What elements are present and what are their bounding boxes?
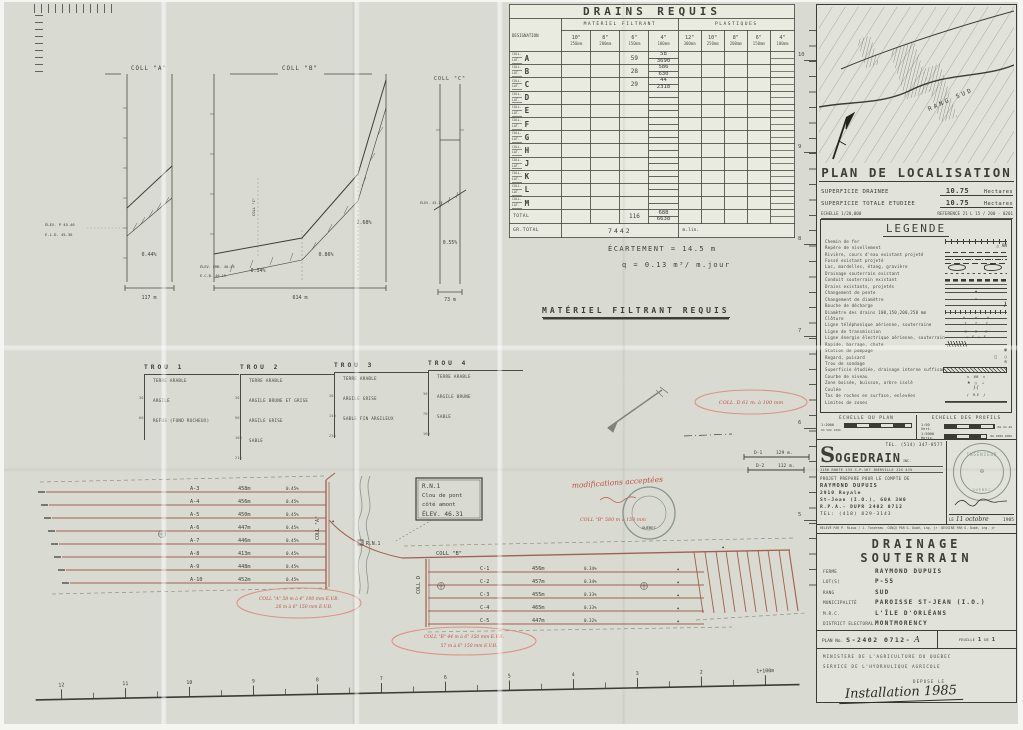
- scale-bar: [944, 434, 987, 439]
- materiel-filtrant-heading: MATÉRIEL FILTRANT REQUIS: [542, 306, 730, 318]
- manhole-symbol-icon: [945, 354, 1007, 360]
- group-header-plastiques: PLASTIQUES: [678, 19, 794, 31]
- value-cell-150mm: [620, 183, 649, 196]
- svg-text:COLL "B" 44 m à 6" 150 mm E: COLL "B" 44 m à 6" 150 mm E.V.B.: [424, 633, 505, 640]
- client-phone: TEL: (418) 829-3143: [820, 512, 943, 517]
- elevation-note: E.C.B. 40.19: [200, 274, 226, 278]
- svg-text:0.45%: 0.45%: [286, 564, 299, 569]
- group-header-filtrant: MATÉRIEL FILTRANT: [562, 19, 678, 31]
- svg-text:0.45%: 0.45%: [286, 486, 299, 491]
- svg-text:0.45%: 0.45%: [286, 551, 299, 556]
- client-address: 2910 Royale: [820, 491, 943, 496]
- svg-text:▲: ▲: [677, 619, 680, 623]
- wooded-zone-symbol-icon: [945, 380, 1007, 386]
- designation-header: DESIGNATION: [510, 19, 562, 52]
- value-cell-100mm: [649, 104, 678, 117]
- svg-text:26 m à 6" 150 mm E.V.B.: 26 m à 6" 150 mm E.V.B.: [275, 603, 333, 610]
- value-cell-150mm: [620, 157, 649, 170]
- svg-text:Clou de pont: Clou de pont: [422, 493, 462, 499]
- designation-letter: M: [525, 199, 530, 208]
- value-cell-150mm: [620, 91, 649, 104]
- svg-text:A-6: A-6: [190, 525, 199, 531]
- svg-text:A-10: A-10: [190, 577, 203, 583]
- drawing-title: DRAINAGE SOUTERRAIN: [817, 537, 1016, 565]
- collector-a: [326, 473, 402, 589]
- designation-letter: J: [525, 159, 530, 168]
- svg-text:A-3: A-3: [190, 486, 199, 492]
- table-body: COLL.LAT.A 59 583690 COLL.LAT.B 28 58663…: [510, 52, 795, 210]
- benchmark-symbol-icon: [945, 245, 1007, 251]
- elevation-markers: ▲▲▲ ▲▲▲ ▲: [332, 519, 725, 623]
- svg-text:413m: 413m: [238, 551, 251, 557]
- svg-text:C-4: C-4: [480, 605, 489, 611]
- value-cell-100mm: [649, 91, 678, 104]
- designation-letter: G: [525, 133, 530, 142]
- title-block-field: M.R.C.L'ÎLE D'ORLÉANS: [823, 610, 1010, 620]
- client-rpa: R.P.A.- DUPR 2402 0712: [820, 505, 943, 510]
- svg-text:modifications acceptées: modifications acceptées: [572, 475, 664, 490]
- credits-row: RELEVÉ PAR P. Rioux / J. Tondreau CONÇU …: [817, 525, 1016, 534]
- handwritten-red-notes: COLL. D 61 m. à 100 mm modifications acc…: [237, 390, 807, 655]
- profile-scale: ECHELLE DES PROFILS 1:50 Vert.0m 1m 2m 1…: [916, 415, 1016, 439]
- svg-text:455m: 455m: [532, 592, 545, 598]
- length-label: 117 m: [141, 295, 156, 301]
- ecartement-value: ÉCARTEMENT = 14.5 m: [608, 245, 731, 253]
- table-row: COLL.LAT.F: [510, 117, 795, 130]
- title-block-field: LOT(S)P-55: [823, 578, 1010, 588]
- svg-text:côté amont: côté amont: [422, 501, 456, 508]
- value-cell-150mm: [620, 104, 649, 117]
- svg-text:ÉLEV. 46.31: ÉLEV. 46.31: [422, 509, 463, 518]
- slope-labels-a: 0.45%0.45% 0.45%0.45% 0.45%0.45% 0.45%0.…: [286, 486, 299, 582]
- fence-symbol-icon: [945, 315, 1007, 321]
- localisation-map: RANG SUD: [819, 7, 1014, 163]
- svg-text:0.33%: 0.33%: [584, 592, 597, 597]
- svg-text:57 m à 6" 150 mm E.V.B.: 57 m à 6" 150 mm E.V.B.: [441, 642, 498, 649]
- profile-chart-coll-b: COLL "B" COLL "C" 0.34% 0.86% 2.68% 614 …: [200, 58, 400, 302]
- engineer-stamp: INGÉNIEUR ✠ QUÉBEC: [953, 443, 1011, 501]
- borehole-symbol-icon: [945, 361, 1007, 367]
- value-cell-150mm: [620, 117, 649, 130]
- lateral-labels-c: C-1456m C-2457m C-3455m C-4465m C-5447m: [480, 566, 545, 624]
- scanned-drainage-plan: COLL "A" 0.44% 117 m ÉLEV. P 45.46 E.L.D…: [0, 0, 1023, 730]
- approval-stamp: QUÉBEC: [623, 487, 675, 539]
- table-row: COLL.LAT.E: [510, 104, 795, 117]
- drains-requis-table: DRAINS REQUIS DESIGNATION MATÉRIEL FILTR…: [509, 4, 795, 238]
- svg-text:R.N.1: R.N.1: [366, 541, 381, 547]
- junction-label: COLL "C": [251, 198, 256, 216]
- svg-text:C-3: C-3: [480, 592, 489, 598]
- zone-markers: [159, 531, 648, 590]
- table-row: COLL.LAT.D: [510, 91, 795, 104]
- zone-limit-symbol-icon: [945, 399, 1007, 405]
- svg-text:COLL "A" 58 m à 4" 100 mm E: COLL "A" 58 m à 4" 100 mm E.V.B.: [259, 595, 340, 602]
- pumping-station-symbol-icon: [945, 348, 1007, 354]
- svg-text:C-1: C-1: [480, 566, 489, 572]
- svg-text:447m: 447m: [532, 618, 545, 624]
- slope-change-symbol-icon: [945, 290, 1007, 296]
- svg-text:▲: ▲: [677, 567, 680, 571]
- value-cell-100mm: [649, 144, 678, 157]
- debit-value: q = 0.13 m³/ m.jour: [608, 261, 731, 269]
- transmission-line-symbol-icon: [945, 328, 1007, 334]
- project-for-label: PROJET PREPARE POUR LE COMPTE DE: [820, 476, 943, 481]
- collector-b-label: COLL "B": [436, 551, 462, 557]
- svg-text:0.45%: 0.45%: [286, 538, 299, 543]
- value-cell-100mm: [649, 170, 678, 183]
- svg-text:0.45%: 0.45%: [286, 499, 299, 504]
- client-name: RAYMOND DUPUIS: [820, 483, 943, 489]
- d-profile-labels: D-1129 m. D-2112 m.: [754, 450, 795, 469]
- table-row: COLL.LAT.M: [510, 197, 795, 210]
- value-cell-100mm: [649, 117, 678, 130]
- value-cell-150mm: 28: [620, 65, 649, 78]
- slope-label: 0.44%: [141, 252, 156, 258]
- slope-label: 0.55%: [443, 240, 458, 246]
- spacing-note: ÉCARTEMENT = 14.5 m q = 0.13 m³/ m.jour: [608, 245, 731, 277]
- profile-title: COLL "A": [131, 66, 167, 72]
- lateral-drains-fan: [694, 550, 798, 613]
- designation-letter: B: [525, 67, 530, 76]
- table-row: COLL.LAT.J: [510, 157, 795, 170]
- field-boundaries: [40, 476, 806, 632]
- trou-title: TROU 2: [240, 364, 336, 371]
- svg-text:129 m.: 129 m.: [776, 450, 793, 456]
- svg-text:A-4: A-4: [190, 499, 199, 505]
- svg-text:▲: ▲: [677, 593, 680, 597]
- stream-lines: [358, 476, 370, 594]
- svg-text:A-7: A-7: [190, 538, 199, 544]
- svg-text:457m: 457m: [532, 579, 545, 585]
- ministry-block: MINISTERE DE L'AGRICULTURE DU QUEBEC SER…: [817, 649, 1016, 716]
- field-plan-drawing: ▲▲▲ ▲▲▲ ▲ A-3458m A-4456m A-5450m A-6447…: [32, 380, 817, 670]
- value-cell-100mm: 583690: [649, 52, 678, 65]
- value-cell-150mm: [620, 197, 649, 210]
- svg-text:456m: 456m: [238, 499, 251, 505]
- slope-label: 2.68%: [356, 220, 371, 226]
- value-cell-150mm: 29: [620, 78, 649, 91]
- svg-text:5: 5: [508, 673, 511, 679]
- gully-symbol-icon: [945, 386, 1007, 392]
- table-row: COLL.LAT.L: [510, 183, 795, 196]
- lateral-labels-a: A-3458m A-4456m A-5450m A-6447m A-7446m …: [190, 486, 251, 583]
- rapids-symbol-icon: [945, 341, 1007, 347]
- svg-text:6: 6: [444, 675, 447, 681]
- svg-text:1+100m: 1+100m: [756, 668, 774, 674]
- benchmark-box: R.N.1 Clou de pont côté amont ÉLEV. 46.3…: [358, 478, 482, 547]
- company-address: 1156 ROUTE 133 C.P.167 IBERVILLE J2X 4J5: [820, 466, 943, 473]
- svg-text:C-5: C-5: [480, 618, 489, 624]
- edge-tick-marks: [34, 4, 112, 13]
- svg-text:12: 12: [58, 682, 64, 688]
- studied-area-symbol-icon: [943, 367, 1007, 373]
- svg-text:452m: 452m: [238, 577, 251, 583]
- company-block: TEL. (514) 347-8577 SOGEDRAININC. 1156 R…: [817, 441, 1016, 525]
- elevation-note: ÉLEV. 43.17: [420, 200, 442, 205]
- existing-drainage-symbol-icon: [945, 270, 1007, 276]
- drain-inlet-marks: [38, 492, 69, 583]
- station-numbers: 1211 109 87 65 43 21+100m: [58, 668, 774, 688]
- svg-text:448m: 448m: [238, 564, 251, 570]
- telephone-line-symbol-icon: [945, 322, 1007, 328]
- plan-number-suffix: A: [914, 635, 920, 644]
- profile-title: COLL "C": [434, 76, 466, 82]
- title-block-field: RANGSUD: [823, 589, 1010, 599]
- value-cell-100mm: [649, 131, 678, 144]
- title-panel: RANG SUD PLAN DE LOCALISATION SUPERFICIE…: [816, 4, 1017, 703]
- svg-text:0.45%: 0.45%: [286, 512, 299, 517]
- svg-text:112 m.: 112 m.: [778, 463, 795, 469]
- superficie-totale-row: SUPERFICIE TOTALE ETUDIEE10.75Hectares: [821, 199, 1013, 208]
- lateral-drains-a: [46, 492, 326, 583]
- svg-text:8: 8: [316, 677, 319, 683]
- localisation-title: PLAN DE LOCALISATION: [817, 165, 1016, 180]
- svg-text:3: 3: [636, 671, 639, 677]
- designation-letter: D: [525, 93, 530, 102]
- length-label: 73 m: [444, 297, 456, 302]
- svg-text:▲: ▲: [332, 519, 335, 523]
- signature: [951, 495, 1011, 509]
- lake-symbol-icon: [945, 264, 1007, 270]
- value-cell-100mm: 442318: [649, 78, 678, 91]
- title-block-field: FERMERAYMOND DUPUIS: [823, 568, 1010, 578]
- slope-label: 0.34%: [250, 268, 265, 274]
- scale-bar: [844, 423, 912, 428]
- slope-labels-c: 0.34%0.34% 0.33%0.33% 0.32%: [584, 566, 597, 623]
- svg-text:2: 2: [700, 670, 703, 676]
- value-cell-100mm: [649, 183, 678, 196]
- svg-text:▲: ▲: [677, 606, 680, 610]
- underground-conduit-symbol-icon: [945, 277, 1007, 283]
- svg-text:A-8: A-8: [190, 551, 199, 557]
- slope-label: 0.86%: [318, 252, 333, 258]
- designation-letter: E: [525, 106, 530, 115]
- table-row: COLL.LAT.C 29 442318: [510, 78, 795, 91]
- trou-title: TROU 3: [334, 362, 430, 369]
- profile-title: COLL "B": [282, 66, 318, 72]
- paper-sheet: COLL "A" 0.44% 117 m ÉLEV. P 45.46 E.L.D…: [4, 2, 1018, 724]
- table-title: DRAINS REQUIS: [510, 5, 795, 19]
- elevation-note: E.L.D. 45.36: [45, 232, 73, 237]
- value-cell-150mm: [620, 131, 649, 144]
- trou-title: TROU 4: [428, 360, 524, 367]
- svg-text:0.45%: 0.45%: [286, 577, 299, 582]
- title-block-field: DISTRICT ELECTORALMONTMORENCY: [823, 620, 1010, 630]
- svg-text:4: 4: [572, 672, 575, 678]
- table-row: COLL.LAT.H: [510, 144, 795, 157]
- power-line-symbol-icon: [945, 335, 1007, 341]
- svg-text:11: 11: [122, 681, 128, 687]
- legend-box: LEGENDE Chemin de fer Repère de nivellem…: [820, 219, 1012, 413]
- value-cell-100mm: 586630: [649, 65, 678, 78]
- svg-text:QUÉBEC: QUÉBEC: [642, 525, 656, 530]
- elevation-note: ÉLEV. P 45.46: [45, 222, 75, 227]
- designation-letter: H: [525, 146, 530, 155]
- outlet-symbol-icon: [945, 303, 1007, 309]
- profile-chart-coll-c: COLL "C" ÉLEV. 43.17 0.55% 73 m: [418, 70, 478, 302]
- legend-title: LEGENDE: [821, 222, 1011, 235]
- svg-text:0.34%: 0.34%: [584, 579, 597, 584]
- drain-diameter-symbol-icon: [945, 309, 1007, 315]
- svg-text:C-2: C-2: [480, 579, 489, 585]
- value-cell-150mm: [620, 170, 649, 183]
- date-row: LE 11 octobre 1985: [949, 514, 1014, 523]
- table-row: COLL.LAT.K: [510, 170, 795, 183]
- svg-text:D-1: D-1: [754, 450, 763, 456]
- svg-text:465m: 465m: [532, 605, 545, 611]
- contour-symbol-icon: [945, 373, 1007, 379]
- svg-text:COLL. D 61 m. à 100 mm: COLL. D 61 m. à 100 mm: [719, 399, 784, 406]
- designation-letter: A: [525, 54, 530, 63]
- svg-text:0.32%: 0.32%: [584, 618, 597, 623]
- ditch-symbol-icon: [945, 258, 1007, 264]
- svg-text:0.33%: 0.33%: [584, 605, 597, 610]
- designation-letter: K: [525, 172, 530, 181]
- svg-text:R.N.1: R.N.1: [422, 483, 440, 490]
- length-label: 614 m: [292, 295, 307, 301]
- value-cell-100mm: [649, 157, 678, 170]
- value-cell-150mm: [620, 144, 649, 157]
- handwritten-installation-note: Installation 1985: [839, 683, 964, 704]
- client-address: St-Jean (I.O.), G0A 3W0: [820, 498, 943, 503]
- pencil-arrow: [608, 387, 668, 432]
- total-row: TOTAL 116 6886638: [510, 210, 795, 224]
- drawing-title-block: DRAINAGE SOUTERRAIN FERMERAYMOND DUPUIS …: [817, 534, 1016, 716]
- svg-text:0.34%: 0.34%: [584, 566, 597, 571]
- svg-text:10: 10: [186, 680, 192, 686]
- profile-chart-coll-a: COLL "A" 0.44% 117 m ÉLEV. P 45.46 E.L.D…: [37, 58, 177, 302]
- designation-letter: L: [525, 185, 530, 194]
- svg-text:A-9: A-9: [190, 564, 199, 570]
- designation-letter: F: [525, 120, 530, 129]
- table-row: COLL.LAT.A 59 583690: [510, 52, 795, 65]
- elevation-note: ÉLEV. EMB. 40.45: [200, 264, 235, 269]
- svg-text:450m: 450m: [238, 512, 251, 518]
- scale-bar: [944, 424, 995, 429]
- svg-text:446m: 446m: [238, 538, 251, 544]
- rock-pile-symbol-icon: [945, 393, 1007, 399]
- svg-text:0.45%: 0.45%: [286, 525, 299, 530]
- svg-text:▲: ▲: [677, 580, 680, 584]
- svg-text:A-5: A-5: [190, 512, 199, 518]
- scale-reference-row: ECHELLE 1/20,000REFERENCE 21 L 15 / 200 …: [821, 211, 1013, 219]
- superficie-drainee-row: SUPERFICIE DRAINEE10.75Hectares: [821, 187, 1013, 196]
- grand-total-row: GR.TOTAL 7442 m.lin.: [510, 224, 795, 238]
- table-row: COLL.LAT.B 28 586630: [510, 65, 795, 78]
- trou-title: TROU 1: [144, 364, 240, 371]
- svg-text:456m: 456m: [532, 566, 545, 572]
- svg-text:D-2: D-2: [756, 463, 765, 469]
- company-logo: SOGEDRAININC.: [820, 447, 943, 465]
- plan-number-row: PLAN No. S-2402 0712- A FEUILLE1 DE1: [817, 630, 1016, 649]
- svg-text:9: 9: [252, 679, 255, 685]
- table-row: COLL.LAT.G: [510, 131, 795, 144]
- svg-text:447m: 447m: [238, 525, 251, 531]
- side-chainage-ruler: 10 9 8 7 6 5: [798, 22, 816, 614]
- scale-bars: ECHELLE DU PLAN 1:2000 0m 50m 100m ECHEL…: [817, 415, 1016, 440]
- collector-a-label: COLL "A": [315, 516, 321, 540]
- svg-text:▲: ▲: [722, 545, 725, 549]
- title-block-field: MUNICIPALITÉPAROISSE ST-JEAN (I.O.): [823, 599, 1010, 609]
- sheet-number-cell: FEUILLE1 DE1: [937, 631, 1016, 648]
- river-symbol-icon: [945, 251, 1007, 257]
- value-cell-100mm: [649, 197, 678, 210]
- plan-scale: ECHELLE DU PLAN 1:2000 0m 50m 100m: [817, 415, 916, 439]
- collector-d-label: COLL D: [416, 576, 422, 594]
- value-cell-150mm: 59: [620, 52, 649, 65]
- svg-text:COLL "B" 580 m à 150 mm: COLL "B" 580 m à 150 mm: [580, 516, 646, 523]
- svg-text:458m: 458m: [238, 486, 251, 492]
- svg-text:7: 7: [380, 676, 383, 682]
- designation-letter: C: [525, 80, 530, 89]
